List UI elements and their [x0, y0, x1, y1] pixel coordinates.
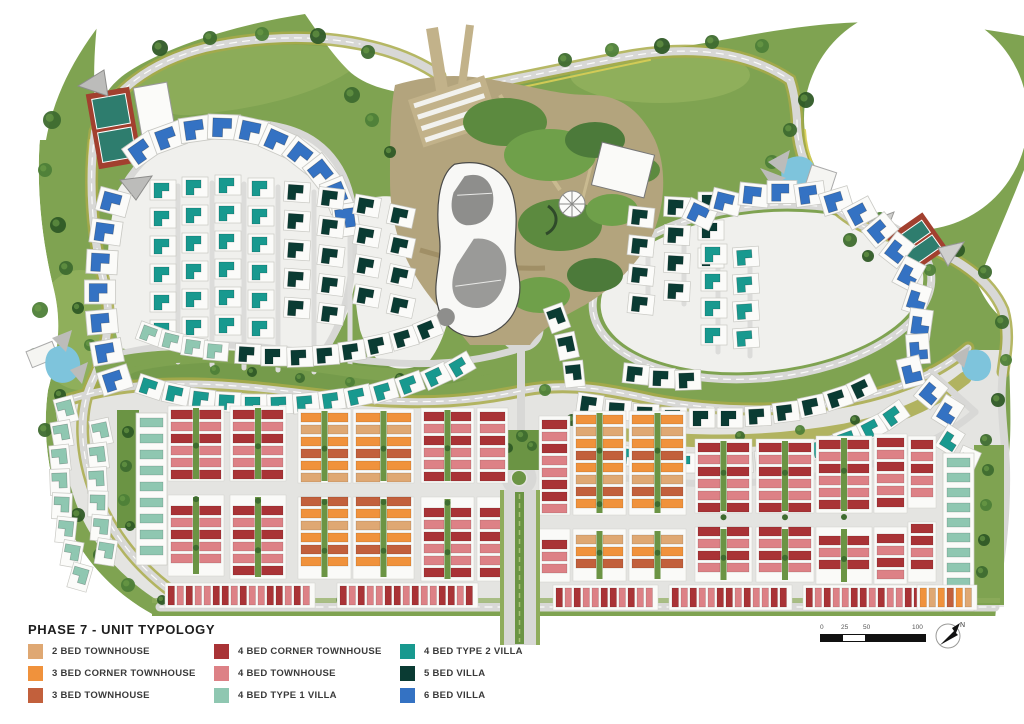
legend-swatch	[28, 666, 43, 681]
legend-column-2: 4 BED CORNER TOWNHOUSE4 BED TOWNHOUSE4 B…	[214, 644, 374, 703]
gazebo	[559, 191, 585, 217]
legend-column-3: 4 BED TYPE 2 VILLA5 BED VILLA6 BED VILLA	[400, 644, 560, 703]
entrance-boulevard	[500, 490, 540, 645]
legend-item: 5 BED VILLA	[400, 666, 560, 681]
legend: 2 BED TOWNHOUSE3 BED CORNER TOWNHOUSE3 B…	[28, 644, 560, 703]
north-label: N	[960, 622, 965, 629]
legend-swatch	[400, 644, 415, 659]
scale-label-100: 100	[912, 624, 923, 631]
legend-item-label: 4 BED TOWNHOUSE	[238, 668, 336, 679]
scale-label-0: 0	[820, 624, 824, 631]
masterplan-page: PHASE 7 - UNIT TYPOLOGY 2 BED TOWNHOUSE3…	[0, 0, 1024, 724]
page-title: PHASE 7 - UNIT TYPOLOGY	[28, 622, 215, 637]
legend-swatch	[400, 666, 415, 681]
legend-swatch	[214, 644, 229, 659]
legend-swatch	[214, 666, 229, 681]
north-arrow: N	[933, 618, 967, 652]
scale-bar-segments	[820, 634, 926, 642]
legend-column-1: 2 BED TOWNHOUSE3 BED CORNER TOWNHOUSE3 B…	[28, 644, 188, 703]
legend-swatch	[28, 688, 43, 703]
legend-item: 2 BED TOWNHOUSE	[28, 644, 188, 659]
legend-item-label: 4 BED TYPE 2 VILLA	[424, 646, 523, 657]
legend-item-label: 5 BED VILLA	[424, 668, 485, 679]
legend-item-label: 2 BED TOWNHOUSE	[52, 646, 150, 657]
legend-item-label: 4 BED CORNER TOWNHOUSE	[238, 646, 382, 657]
masterplan-map	[0, 0, 1024, 724]
legend-item: 3 BED CORNER TOWNHOUSE	[28, 666, 188, 681]
legend-item-label: 4 BED TYPE 1 VILLA	[238, 690, 337, 701]
legend-item-label: 6 BED VILLA	[424, 690, 485, 701]
legend-item: 3 BED TOWNHOUSE	[28, 688, 188, 703]
scale-label-25: 25	[841, 624, 848, 631]
legend-item: 4 BED CORNER TOWNHOUSE	[214, 644, 374, 659]
legend-swatch	[28, 644, 43, 659]
legend-swatch	[214, 688, 229, 703]
legend-item: 4 BED TYPE 1 VILLA	[214, 688, 374, 703]
scale-bar: 0 25 50 100	[820, 624, 926, 642]
legend-item-label: 3 BED TOWNHOUSE	[52, 690, 150, 701]
legend-item: 6 BED VILLA	[400, 688, 560, 703]
legend-item: 4 BED TYPE 2 VILLA	[400, 644, 560, 659]
legend-swatch	[400, 688, 415, 703]
legend-item-label: 3 BED CORNER TOWNHOUSE	[52, 668, 196, 679]
legend-item: 4 BED TOWNHOUSE	[214, 666, 374, 681]
scale-label-50: 50	[863, 624, 870, 631]
